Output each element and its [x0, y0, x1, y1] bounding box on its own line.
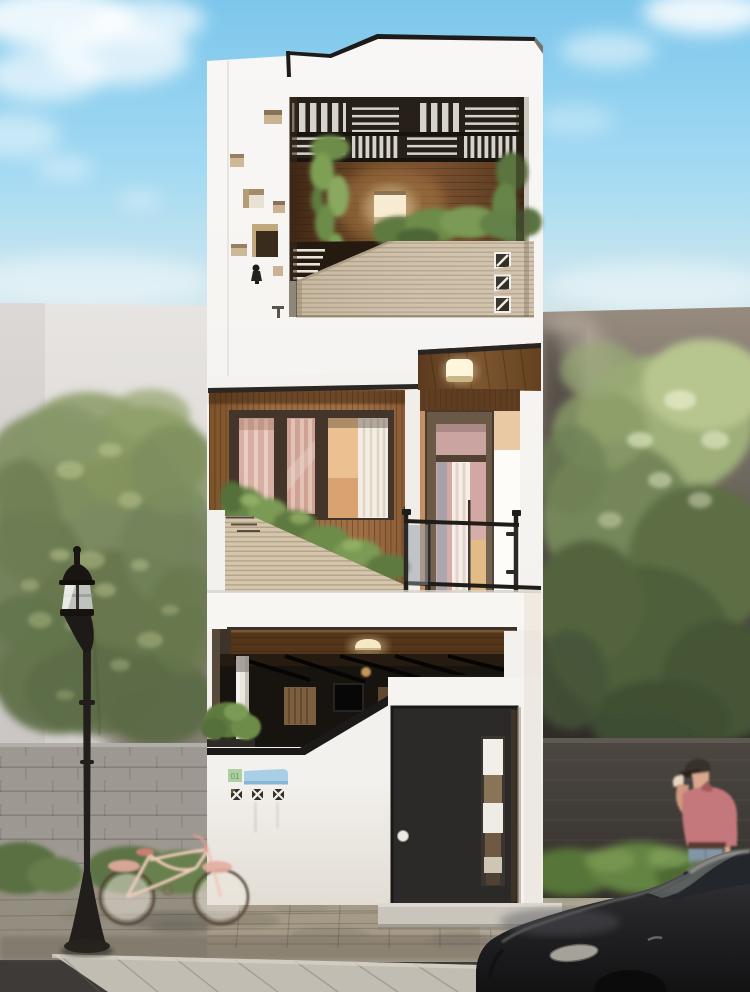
- svg-text:01: 01: [231, 772, 240, 781]
